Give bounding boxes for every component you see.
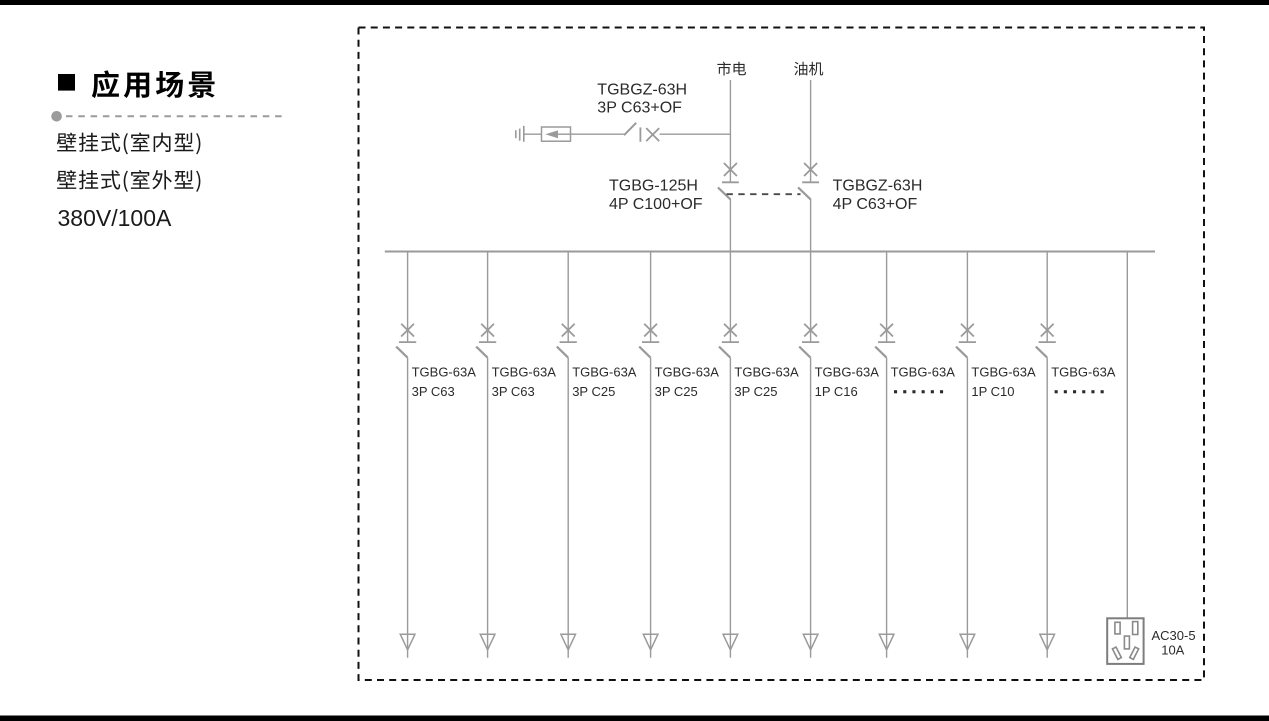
svg-text:4P C100+OF: 4P C100+OF	[609, 196, 703, 213]
svg-text:TGBG-63A: TGBG-63A	[572, 365, 637, 380]
svg-text:3P C25: 3P C25	[572, 384, 615, 399]
svg-text:AC30-5: AC30-5	[1152, 628, 1196, 643]
svg-text:TGBG-63A: TGBG-63A	[655, 365, 720, 380]
svg-text:4P C63+OF: 4P C63+OF	[833, 196, 918, 213]
svg-text:TGBGZ-63H: TGBGZ-63H	[597, 82, 687, 99]
svg-text:3P C63: 3P C63	[492, 384, 535, 399]
svg-text:TGBG-125H: TGBG-125H	[609, 178, 698, 195]
svg-text:3P C63+OF: 3P C63+OF	[597, 100, 682, 117]
svg-text:TGBGZ-63H: TGBGZ-63H	[833, 178, 923, 195]
svg-text:TGBG-63A: TGBG-63A	[815, 365, 880, 380]
svg-text:3P C25: 3P C25	[655, 384, 698, 399]
svg-text:3P C63: 3P C63	[412, 384, 455, 399]
svg-text:380V/100A: 380V/100A	[58, 205, 172, 231]
svg-text:TGBG-63A: TGBG-63A	[412, 365, 477, 380]
svg-text:TGBG-63A: TGBG-63A	[492, 365, 557, 380]
svg-text:3P C25: 3P C25	[734, 384, 777, 399]
svg-text:TGBG-63A: TGBG-63A	[734, 365, 799, 380]
svg-text:10A: 10A	[1161, 643, 1184, 658]
svg-text:1P C10: 1P C10	[971, 384, 1014, 399]
svg-text:TGBG-63A: TGBG-63A	[891, 365, 956, 380]
svg-text:TGBG-63A: TGBG-63A	[1051, 365, 1116, 380]
svg-text:1P C16: 1P C16	[815, 384, 858, 399]
svg-text:TGBG-63A: TGBG-63A	[971, 365, 1036, 380]
